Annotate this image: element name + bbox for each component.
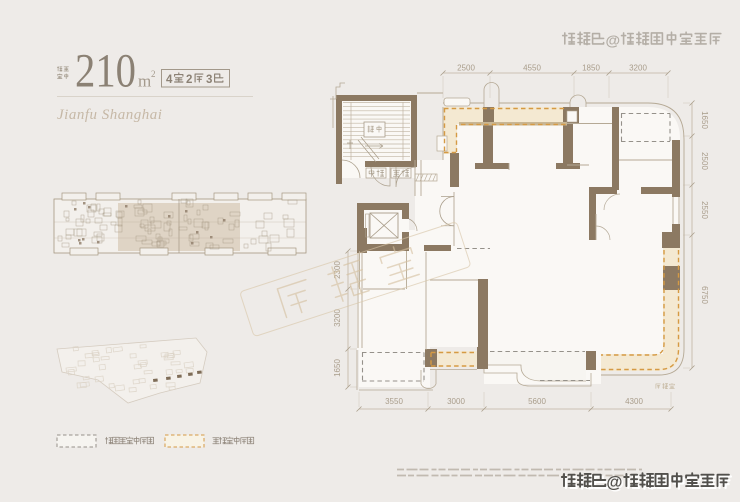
svg-text:2550: 2550 [700,201,709,219]
svg-text:2: 2 [151,69,156,79]
svg-text:2: 2 [186,74,192,86]
svg-text:4300: 4300 [625,397,643,406]
svg-text:5600: 5600 [528,397,546,406]
svg-text:1850: 1850 [582,64,600,73]
svg-text:4: 4 [166,74,173,86]
svg-text:@: @ [605,33,620,50]
svg-text:2500: 2500 [700,152,709,170]
svg-text:3200: 3200 [333,309,342,327]
svg-text:3000: 3000 [447,397,465,406]
svg-text:3: 3 [206,74,212,86]
svg-text:3200: 3200 [629,64,647,73]
svg-text:3550: 3550 [385,397,403,406]
svg-text:@: @ [606,473,622,491]
svg-text:Jianfu Shanghai: Jianfu Shanghai [57,107,162,123]
svg-text:210: 210 [75,45,136,98]
svg-text:m: m [138,72,151,91]
svg-text:2500: 2500 [457,64,475,73]
svg-text:6750: 6750 [700,286,709,304]
svg-text:1650: 1650 [700,111,709,129]
svg-text:4550: 4550 [523,64,541,73]
svg-text:1650: 1650 [333,359,342,377]
